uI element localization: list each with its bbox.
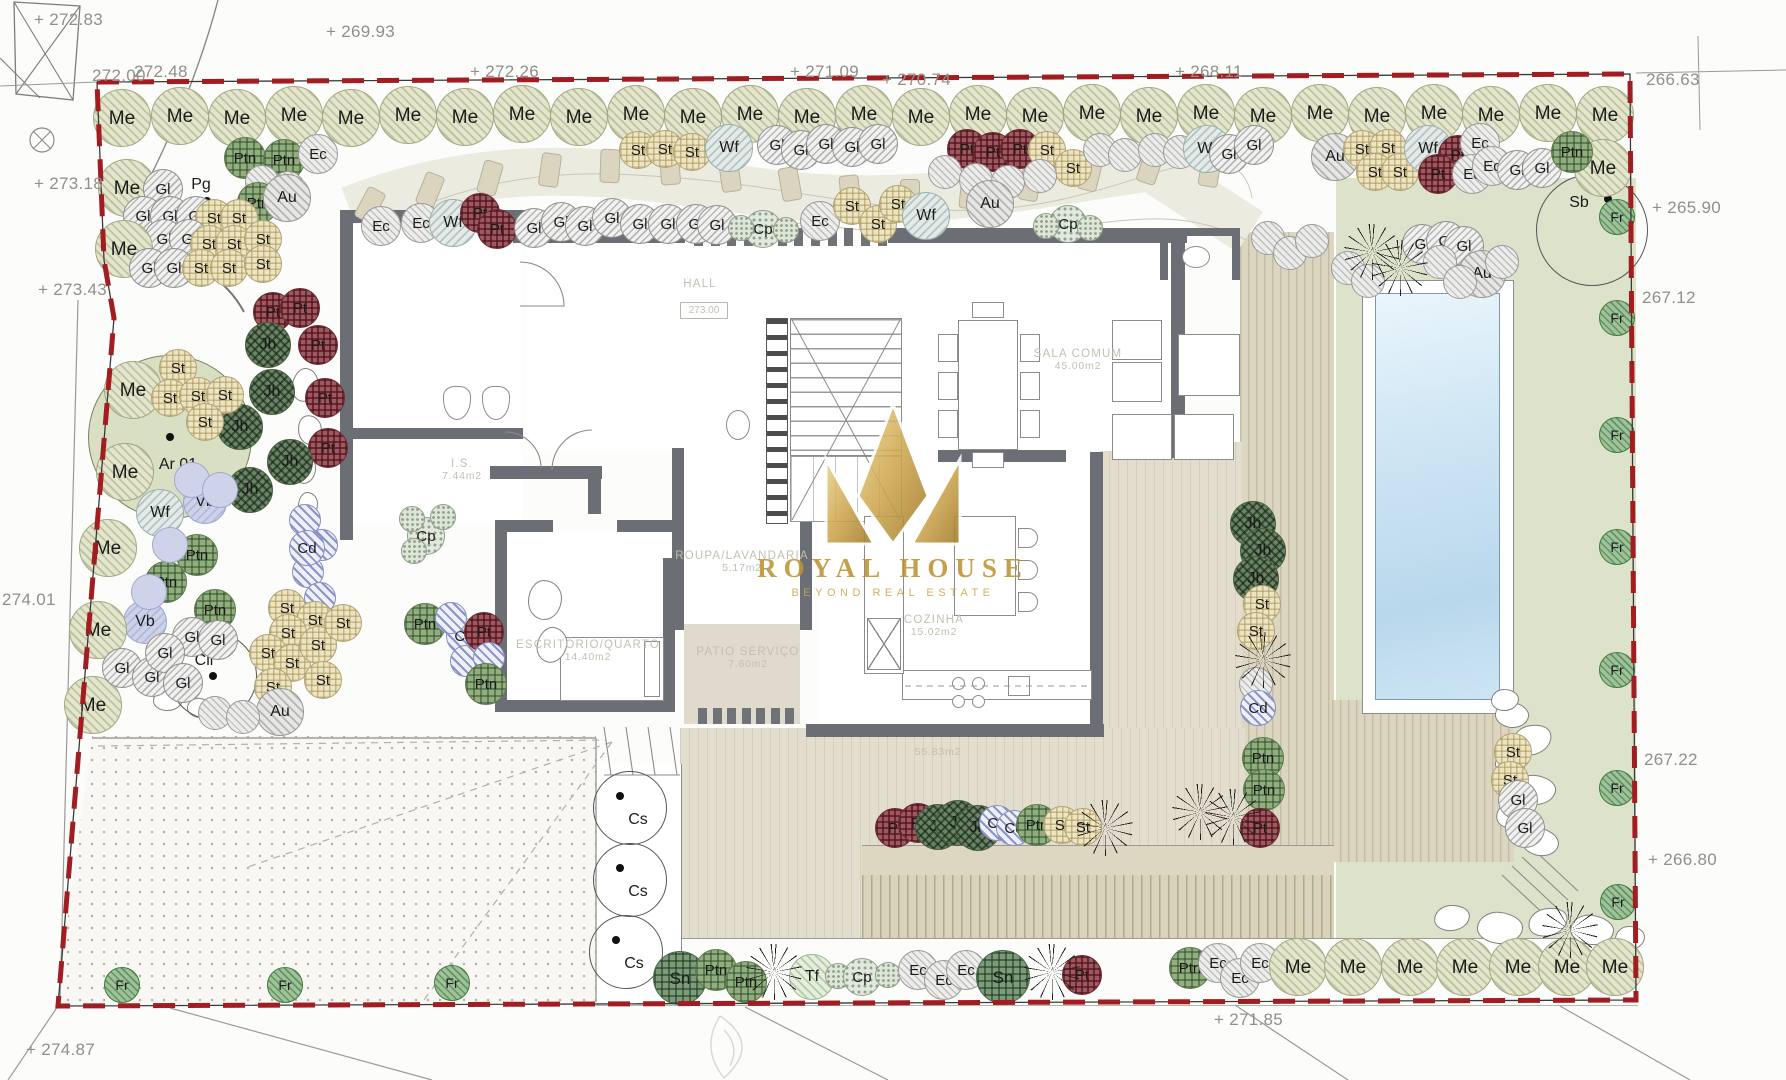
- elevation-label: + 273.18: [34, 174, 103, 194]
- watermark-title: ROYAL HOUSE: [723, 553, 1063, 584]
- elevation-label: + 268.11: [1175, 62, 1243, 82]
- room-label: ESCRITÓRIO/QUARTO14.40m2: [516, 639, 660, 663]
- room-label: SALA COMUM45.00m2: [1034, 348, 1123, 372]
- site-plan: Ar 01PgCliSbCsCsCs MeMeMeMeMeMeMeMeMeMeM…: [0, 0, 1786, 1080]
- elevation-label: + 269.93: [326, 22, 395, 42]
- elevation-label: + 265.90: [1652, 198, 1721, 218]
- room-label: PATIO SERVIÇO7.60m2: [696, 646, 799, 670]
- room-label: 55.83m2: [915, 746, 961, 758]
- room-label: COZINHA15.02m2: [904, 614, 964, 638]
- elevation-label: 274.01: [2, 590, 56, 610]
- watermark-subtitle: BEYOND REAL ESTATE: [723, 587, 1063, 599]
- elevation-label: + 274.87: [26, 1040, 95, 1060]
- elevation-label: 267.22: [1644, 750, 1698, 770]
- elevation-label: + 271.09: [790, 62, 859, 82]
- room-label: I.S.7.44m2: [442, 458, 482, 482]
- elevation-label: + 271.85: [1214, 1010, 1283, 1030]
- elevation-label: + 272.26: [470, 62, 539, 82]
- elevation-label: + 273.43: [38, 280, 107, 300]
- elevation-label: + 272.83: [34, 10, 103, 30]
- room-level: 273.00: [680, 302, 728, 319]
- elevation-label: 267.12: [1642, 288, 1696, 308]
- elevation-label: + 266.80: [1648, 850, 1717, 870]
- crown-icon: [818, 404, 968, 546]
- elevation-label: 266.63: [1646, 70, 1700, 90]
- watermark: ROYAL HOUSE BEYOND REAL ESTATE: [723, 404, 1063, 599]
- elevation-label: 272.48: [134, 62, 188, 82]
- elevation-label: + 270.74: [882, 70, 951, 90]
- room-label: HALL: [683, 278, 717, 290]
